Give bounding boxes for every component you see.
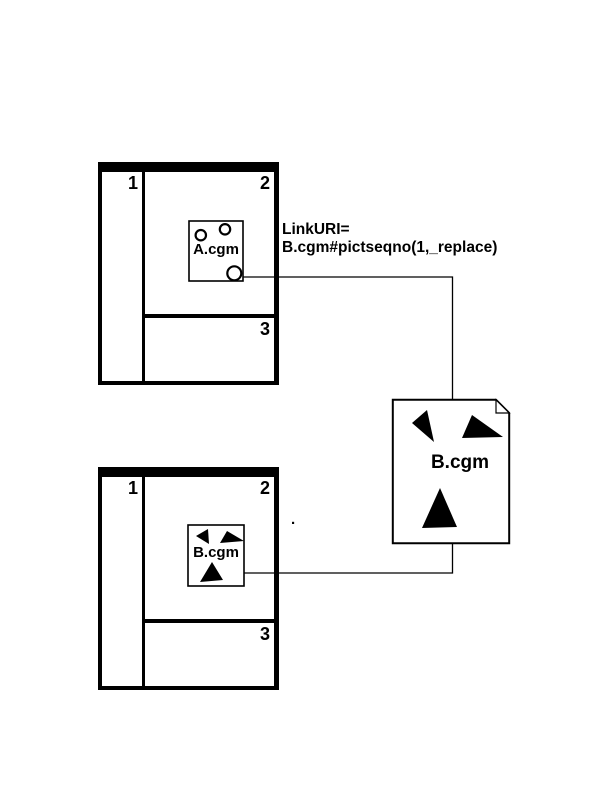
region-1-label: 1 xyxy=(98,479,138,497)
document-icon-label: B.cgm xyxy=(405,453,515,472)
frame-edge-left xyxy=(98,467,102,690)
region-divider-horizontal xyxy=(145,314,275,318)
region-divider-horizontal xyxy=(145,619,275,623)
link-uri-line1: LinkURI= xyxy=(282,221,497,239)
picture-title-bar xyxy=(98,467,279,477)
embedded-object-b-label: B.cgm xyxy=(188,545,244,560)
frame-edge-bottom xyxy=(98,686,279,690)
region-3-label: 3 xyxy=(260,625,270,643)
frame-edge-right xyxy=(274,467,279,690)
stray-period: . xyxy=(291,512,295,527)
picture-title-bar xyxy=(98,162,279,172)
frame-edge-left xyxy=(98,162,102,385)
frame-edge-right xyxy=(274,162,279,385)
link-uri-annotation: LinkURI= B.cgm#pictseqno(1,_replace) xyxy=(282,221,497,256)
link-uri-line2: B.cgm#pictseqno(1,_replace) xyxy=(282,239,497,257)
region-divider-vertical xyxy=(142,477,145,686)
page: 1 2 3 1 2 3 xyxy=(0,0,612,792)
embedded-object-a-label: A.cgm xyxy=(189,242,243,257)
frame-edge-bottom xyxy=(98,381,279,385)
region-divider-vertical xyxy=(142,172,145,381)
region-3-label: 3 xyxy=(260,320,270,338)
picture-frame-bottom: 1 2 3 xyxy=(98,467,279,690)
folded-corner-icon xyxy=(496,400,509,413)
diagram-overlay xyxy=(0,0,612,792)
picture-frame-top: 1 2 3 xyxy=(98,162,279,385)
region-2-label: 2 xyxy=(260,174,270,192)
region-2-label: 2 xyxy=(260,479,270,497)
triangle-glyph xyxy=(412,410,434,442)
region-1-label: 1 xyxy=(98,174,138,192)
triangle-glyph xyxy=(462,415,503,438)
triangle-glyph xyxy=(422,488,457,528)
